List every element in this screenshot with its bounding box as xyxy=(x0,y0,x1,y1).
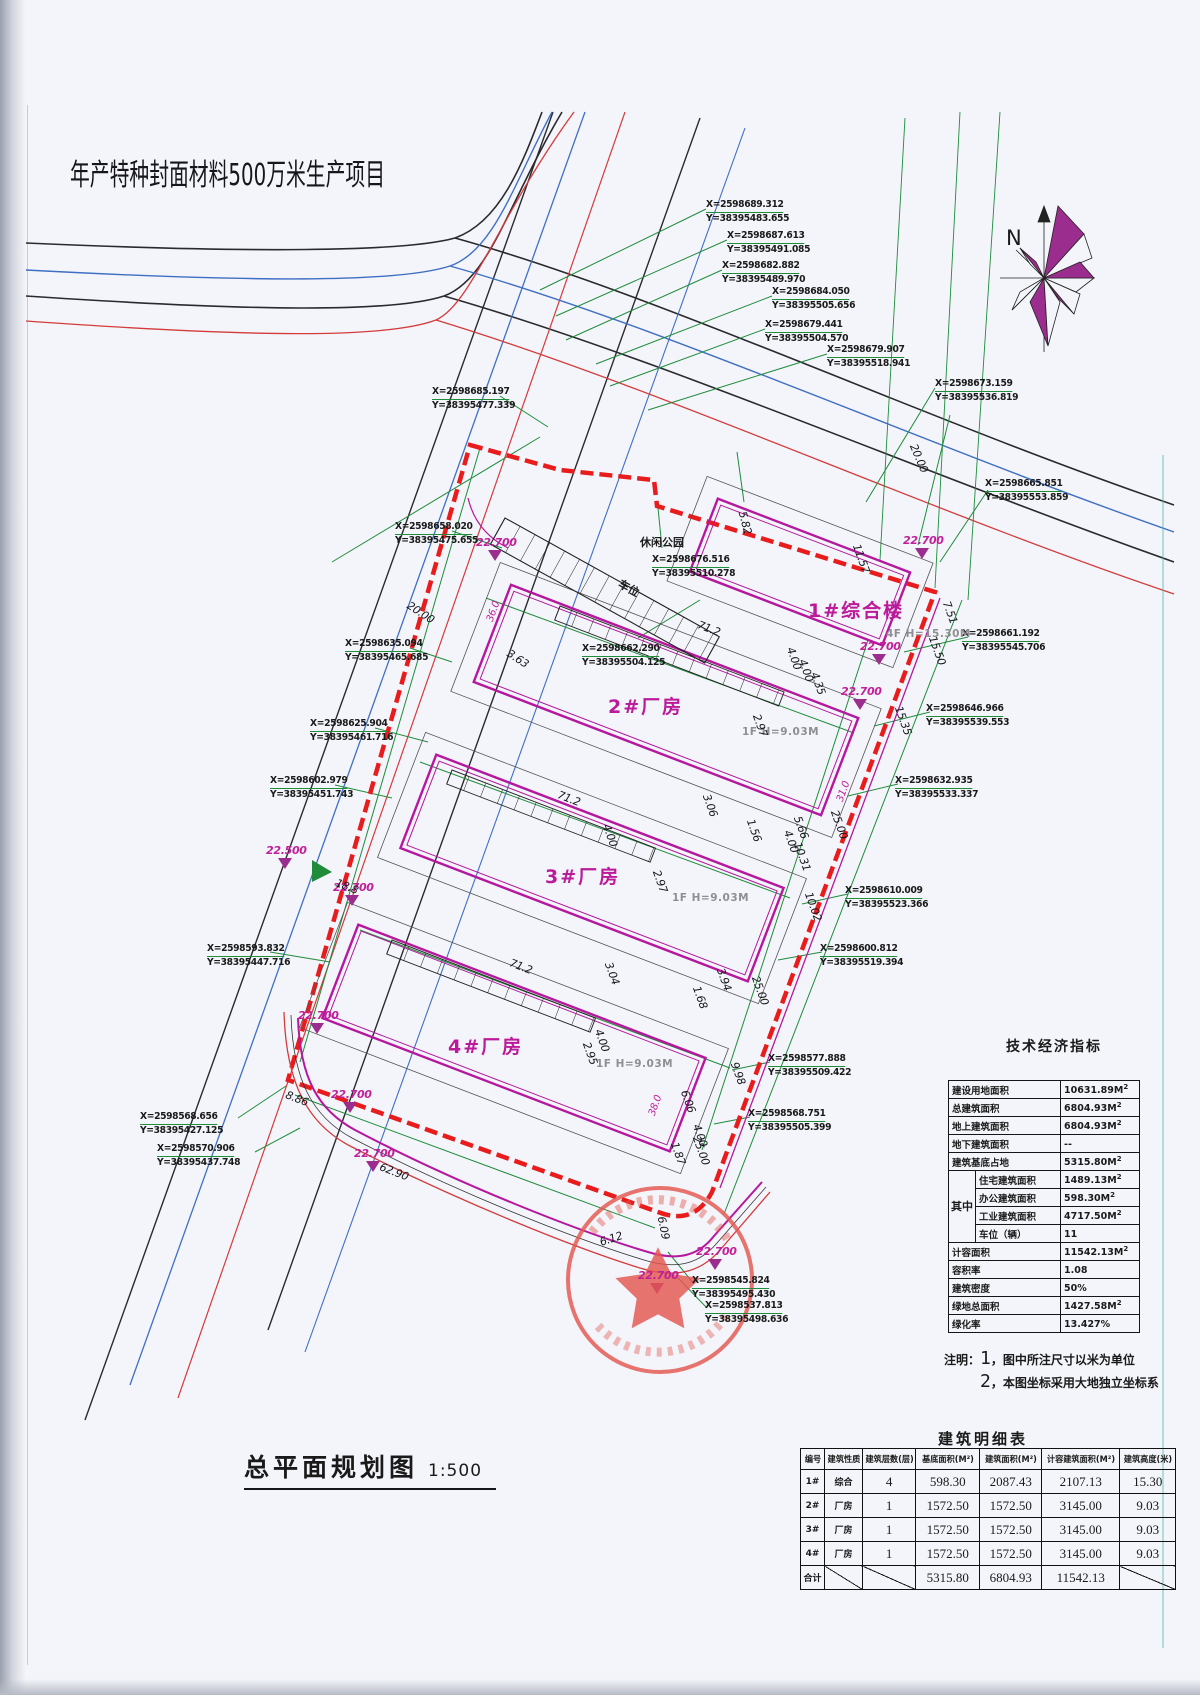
coordinate-y: Y=38395475.655 xyxy=(395,535,478,547)
coordinate-x: X=2598685.197 xyxy=(432,386,510,400)
indicator-value: 1.08 xyxy=(1061,1261,1140,1279)
cell: 598.30 xyxy=(916,1470,980,1494)
cell: 11542.13 xyxy=(1042,1566,1120,1590)
indicator-value-text: 13.427% xyxy=(1064,1319,1110,1330)
cell: 4 xyxy=(863,1470,916,1494)
indicator-value: 6804.93M2 xyxy=(1061,1099,1140,1117)
note-number: 1 xyxy=(980,1348,991,1369)
cell-diagonal xyxy=(863,1566,916,1590)
building-label-4: 4#厂房 xyxy=(448,1032,523,1059)
cell: 1 xyxy=(863,1518,916,1542)
coordinate-label: X=2598689.312Y=38395483.655 xyxy=(706,196,796,225)
project-title: 年产特种封面材料500万米生产项目 xyxy=(70,150,385,194)
elevation-label: 22.700 xyxy=(903,534,944,547)
coordinate-y: Y=38395545.706 xyxy=(962,642,1045,654)
indicator-value: 11542.13M2 xyxy=(1061,1243,1140,1261)
coordinate-y: Y=38395553.859 xyxy=(985,492,1068,504)
coordinate-y: Y=38395427.125 xyxy=(140,1125,223,1137)
coordinate-x: X=2598568.656 xyxy=(140,1111,218,1125)
coordinate-label: X=2598661.192Y=38395545.706 xyxy=(962,625,1052,654)
indicator-value: 6804.93M2 xyxy=(1061,1117,1140,1135)
elevation-label: 22.700 xyxy=(841,685,882,698)
coordinate-y: Y=38395505.656 xyxy=(772,300,855,312)
cell: 1572.50 xyxy=(980,1518,1042,1542)
cell-diagonal xyxy=(825,1566,863,1590)
indicator-label: 绿化率 xyxy=(949,1315,1061,1333)
coordinate-y: Y=38395505.399 xyxy=(748,1122,831,1134)
cell: 1572.50 xyxy=(916,1542,980,1566)
coordinate-x: X=2598679.441 xyxy=(765,319,843,333)
indicator-value: 13.427% xyxy=(1061,1315,1140,1333)
cell: 3# xyxy=(801,1518,825,1542)
table-row: 4#厂房11572.501572.503145.009.03 xyxy=(801,1542,1176,1566)
coordinate-label: X=2598676.516Y=38395510.278 xyxy=(652,551,742,580)
note-number: 2 xyxy=(980,1371,991,1392)
coordinate-label: X=2598679.907Y=38395518.941 xyxy=(827,341,917,370)
unit-sup: 2 xyxy=(1110,1191,1115,1199)
coordinate-x: X=2598568.751 xyxy=(748,1108,826,1122)
unit-sup: 2 xyxy=(1117,1173,1122,1181)
coordinate-y: Y=38395523.366 xyxy=(845,899,928,911)
coordinate-label: X=2598632.935Y=38395533.337 xyxy=(895,772,985,801)
coordinate-y: Y=38395519.394 xyxy=(820,957,903,969)
coordinate-x: X=2598610.009 xyxy=(845,885,923,899)
indicator-label: 容积率 xyxy=(949,1261,1061,1279)
cell: 2107.13 xyxy=(1042,1470,1120,1494)
elevation-label: 22.700 xyxy=(696,1245,737,1258)
note-text: ，图中所注尺寸以米为单位 xyxy=(991,1353,1135,1367)
indicator-value: 11 xyxy=(1061,1225,1140,1243)
coordinate-label: X=2598635.094Y=38395465.685 xyxy=(345,635,435,664)
cell: 厂房 xyxy=(825,1542,863,1566)
coordinate-y: Y=38395465.685 xyxy=(345,652,428,664)
indicator-value-text: 1427.58M xyxy=(1064,1301,1117,1312)
indicator-value-text: 598.30M xyxy=(1064,1193,1110,1204)
indicator-label: 建设用地面积 xyxy=(949,1081,1061,1099)
unit-sup: 2 xyxy=(1123,1245,1128,1253)
cell: 3145.00 xyxy=(1042,1494,1120,1518)
unit-sup: 2 xyxy=(1117,1299,1122,1307)
elevation-label: 22.700 xyxy=(331,1088,372,1101)
indicator-value-text: 4717.50M xyxy=(1064,1211,1117,1222)
table-row: 1#综合4598.302087.432107.1315.30 xyxy=(801,1470,1176,1494)
coordinate-label: X=2598570.906Y=38395437.748 xyxy=(157,1140,247,1169)
table-row: 3#厂房11572.501572.503145.009.03 xyxy=(801,1518,1176,1542)
cell: 1# xyxy=(801,1470,825,1494)
building-spec-3: 1F H=9.03M xyxy=(672,892,749,904)
coordinate-y: Y=38395510.278 xyxy=(652,568,735,580)
indicator-value-text: 11 xyxy=(1064,1229,1077,1240)
indicator-value-text: 50% xyxy=(1064,1283,1087,1294)
elevation-label: 22.700 xyxy=(860,640,901,653)
coordinate-x: X=2598625.904 xyxy=(310,718,388,732)
drawing-title-block: 总平面规划图1:500 xyxy=(244,1448,496,1490)
coordinate-x: X=2598537.813 xyxy=(705,1300,783,1314)
cell: 3145.00 xyxy=(1042,1542,1120,1566)
elevation-label: 22.500 xyxy=(266,844,307,857)
notes: 注明：1，图中所注尺寸以米为单位 2，本图坐标采用大地独立坐标系 xyxy=(944,1348,1159,1392)
indicator-value: 1427.58M2 xyxy=(1061,1297,1140,1315)
column-header: 计容建筑面积(M²) xyxy=(1043,1449,1118,1470)
coordinate-x: X=2598635.094 xyxy=(345,638,423,652)
elevation-label: 22.700 xyxy=(354,1147,395,1160)
indicator-label: 建筑密度 xyxy=(949,1279,1061,1297)
park-label: 休闲公园 xyxy=(640,534,684,550)
coordinate-y: Y=38395447.716 xyxy=(207,957,290,969)
building-label-2: 2#厂房 xyxy=(608,692,683,719)
elevation-label: 22.700 xyxy=(638,1269,679,1282)
indicator-value-text: 1.08 xyxy=(1064,1265,1087,1276)
indicator-label: 地下建筑面积 xyxy=(949,1135,1061,1153)
coordinate-label: X=2598665.851Y=38395553.859 xyxy=(985,475,1075,504)
indicator-label: 计容面积 xyxy=(949,1243,1061,1261)
indicator-value-text: 1489.13M xyxy=(1064,1175,1117,1186)
unit-sup: 2 xyxy=(1123,1083,1128,1091)
elevation-label: 22.700 xyxy=(476,536,517,549)
coordinate-y: Y=38395437.748 xyxy=(157,1157,240,1169)
cell: 1572.50 xyxy=(916,1518,980,1542)
coordinate-label: X=2598537.813Y=38395498.636 xyxy=(705,1297,795,1326)
indicator-value-text: 6804.93M xyxy=(1064,1103,1117,1114)
cell: 15.30 xyxy=(1120,1470,1176,1494)
coordinate-x: X=2598661.192 xyxy=(962,628,1040,642)
indicator-value: 5315.80M2 xyxy=(1061,1153,1140,1171)
drawing-scale: 1:500 xyxy=(428,1461,482,1481)
indicator-table-title: 技术经济指标 xyxy=(1006,1036,1102,1056)
building-table-title: 建筑明细表 xyxy=(938,1428,1028,1449)
cell: 1572.50 xyxy=(980,1542,1042,1566)
building-label-3: 3#厂房 xyxy=(545,862,620,889)
coordinate-x: X=2598682.882 xyxy=(722,260,800,274)
column-header: 建筑高度(米) xyxy=(1121,1449,1175,1470)
coordinate-label: X=2598682.882Y=38395489.970 xyxy=(722,257,812,286)
column-header: 建筑面积(M²) xyxy=(981,1449,1041,1470)
cell: 2# xyxy=(801,1494,825,1518)
cell-diagonal xyxy=(1120,1566,1176,1590)
unit-sup: 2 xyxy=(1117,1101,1122,1109)
coordinate-x: X=2598665.851 xyxy=(985,478,1063,492)
coordinate-x: X=2598600.812 xyxy=(820,943,898,957)
site-plan-page: 年产特种封面材料500万米生产项目 N X=2598689.312Y=38395… xyxy=(0,0,1200,1695)
indicator-value-text: 5315.80M xyxy=(1064,1157,1117,1168)
coordinate-x: X=2598658.020 xyxy=(395,521,473,535)
coordinate-label: X=2598577.888Y=38395509.422 xyxy=(768,1050,858,1079)
coordinate-label: X=2598602.979Y=38395451.743 xyxy=(270,772,360,801)
coordinate-x: X=2598679.907 xyxy=(827,344,905,358)
indicator-label: 工业建筑面积 xyxy=(976,1207,1061,1225)
indicator-label: 绿地总面积 xyxy=(949,1297,1061,1315)
coordinate-label: X=2598687.613Y=38395491.085 xyxy=(727,227,817,256)
coordinate-x: X=2598673.159 xyxy=(935,378,1013,392)
notes-prefix: 注明： xyxy=(944,1353,980,1367)
indicator-value-text: 11542.13M xyxy=(1064,1247,1123,1258)
coordinate-x: X=2598676.516 xyxy=(652,554,730,568)
coordinate-y: Y=38395483.655 xyxy=(706,213,789,225)
column-header: 编号 xyxy=(801,1449,824,1470)
coordinate-label: X=2598658.020Y=38395475.655 xyxy=(395,518,485,547)
cell: 1572.50 xyxy=(980,1494,1042,1518)
coordinate-label: X=2598568.656Y=38395427.125 xyxy=(140,1108,230,1137)
indicator-value: 1489.13M2 xyxy=(1061,1171,1140,1189)
coordinate-x: X=2598577.888 xyxy=(768,1053,846,1067)
cell: 2087.43 xyxy=(980,1470,1042,1494)
coordinate-y: Y=38395509.422 xyxy=(768,1067,851,1079)
coordinate-y: Y=38395498.636 xyxy=(705,1314,788,1326)
cell: 1572.50 xyxy=(916,1494,980,1518)
indicator-value-text: 10631.89M xyxy=(1064,1085,1123,1096)
coordinate-x: X=2598545.824 xyxy=(692,1275,770,1289)
column-header: 基底面积(M²) xyxy=(917,1449,978,1470)
cell: 1 xyxy=(863,1542,916,1566)
coordinate-y: Y=38395518.941 xyxy=(827,358,910,370)
coordinate-x: X=2598570.906 xyxy=(157,1143,235,1157)
coordinate-label: X=2598646.966Y=38395539.553 xyxy=(926,700,1016,729)
coordinate-label: X=2598610.009Y=38395523.366 xyxy=(845,882,935,911)
coordinate-x: X=2598662.290 xyxy=(582,643,660,657)
drawing-title: 总平面规划图 xyxy=(244,1453,418,1482)
indicator-group-label: 其中 xyxy=(949,1171,976,1243)
coordinate-label: X=2598568.751Y=38395505.399 xyxy=(748,1105,838,1134)
title-underline xyxy=(244,1488,496,1490)
coordinate-y: Y=38395461.716 xyxy=(310,732,393,744)
coordinate-label: X=2598662.290Y=38395504.125 xyxy=(582,640,672,669)
indicator-value: 598.30M2 xyxy=(1061,1189,1140,1207)
indicator-value: 10631.89M2 xyxy=(1061,1081,1140,1099)
coordinate-y: Y=38395477.339 xyxy=(432,400,515,412)
north-label: N xyxy=(1006,226,1022,250)
coordinate-label: X=2598625.904Y=38395461.716 xyxy=(310,715,400,744)
indicator-label: 办公建筑面积 xyxy=(976,1189,1061,1207)
coordinate-y: Y=38395539.553 xyxy=(926,717,1009,729)
cell: 6804.93 xyxy=(980,1566,1042,1590)
indicator-value: 4717.50M2 xyxy=(1061,1207,1140,1225)
indicator-value-text: 6804.93M xyxy=(1064,1121,1117,1132)
indicator-label: 总建筑面积 xyxy=(949,1099,1061,1117)
coordinate-x: X=2598593.832 xyxy=(207,943,285,957)
coordinate-y: Y=38395533.337 xyxy=(895,789,978,801)
coordinate-label: X=2598685.197Y=38395477.339 xyxy=(432,383,522,412)
coordinate-x: X=2598687.613 xyxy=(727,230,805,244)
table-row: 合计5315.806804.9311542.13 xyxy=(801,1566,1176,1590)
indicator-value: 50% xyxy=(1061,1279,1140,1297)
coordinate-y: Y=38395491.085 xyxy=(727,244,810,256)
coordinate-x: X=2598632.935 xyxy=(895,775,973,789)
cell: 9.03 xyxy=(1120,1542,1176,1566)
coordinate-x: X=2598689.312 xyxy=(706,199,784,213)
coordinate-x: X=2598684.050 xyxy=(772,286,850,300)
cell: 厂房 xyxy=(825,1518,863,1542)
indicator-table: 建设用地面积10631.89M2 总建筑面积6804.93M2 地上建筑面积68… xyxy=(948,1080,1140,1333)
indicator-value: -- xyxy=(1061,1135,1140,1153)
cell: 3145.00 xyxy=(1042,1518,1120,1542)
coordinate-label: X=2598684.050Y=38395505.656 xyxy=(772,283,862,312)
cell: 1 xyxy=(863,1494,916,1518)
cell: 综合 xyxy=(825,1470,863,1494)
column-header: 建筑层数(层) xyxy=(864,1449,915,1470)
coordinate-label: X=2598600.812Y=38395519.394 xyxy=(820,940,910,969)
coordinate-y: Y=38395536.819 xyxy=(935,392,1018,404)
building-spec-4: 1F H=9.03M xyxy=(596,1058,673,1070)
cell: 厂房 xyxy=(825,1494,863,1518)
unit-sup: 2 xyxy=(1117,1155,1122,1163)
cell: 5315.80 xyxy=(916,1566,980,1590)
unit-sup: 2 xyxy=(1117,1209,1122,1217)
coordinate-y: Y=38395504.125 xyxy=(582,657,665,669)
coordinate-y: Y=38395451.743 xyxy=(270,789,353,801)
elevation-label: 22.700 xyxy=(298,1009,339,1022)
indicator-value-text: -- xyxy=(1064,1139,1072,1150)
coordinate-label: X=2598673.159Y=38395536.819 xyxy=(935,375,1025,404)
building-label-1: 1#综合楼 xyxy=(808,596,904,623)
cell: 合计 xyxy=(801,1566,825,1590)
indicator-label: 地上建筑面积 xyxy=(949,1117,1061,1135)
cell: 4# xyxy=(801,1542,825,1566)
cell: 9.03 xyxy=(1120,1518,1176,1542)
unit-sup: 2 xyxy=(1117,1119,1122,1127)
coordinate-x: X=2598602.979 xyxy=(270,775,348,789)
column-header: 建筑性质 xyxy=(825,1449,861,1470)
indicator-label: 建筑基底占地 xyxy=(949,1153,1061,1171)
table-row: 2#厂房11572.501572.503145.009.03 xyxy=(801,1494,1176,1518)
coordinate-x: X=2598646.966 xyxy=(926,703,1004,717)
indicator-label: 住宅建筑面积 xyxy=(976,1171,1061,1189)
indicator-label: 车位（辆） xyxy=(976,1225,1061,1243)
cell: 9.03 xyxy=(1120,1494,1176,1518)
note-text: ，本图坐标采用大地独立坐标系 xyxy=(991,1376,1159,1390)
building-detail-table: 编号 建筑性质 建筑层数(层) 基底面积(M²) 建筑面积(M²) 计容建筑面积… xyxy=(800,1448,1176,1590)
coordinate-label: X=2598593.832Y=38395447.716 xyxy=(207,940,297,969)
